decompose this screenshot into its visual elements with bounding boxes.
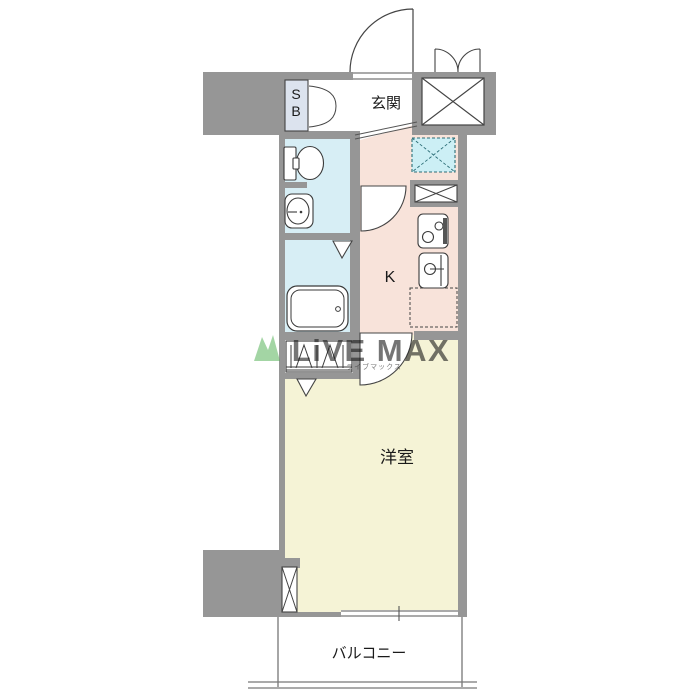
pipe-space-icon bbox=[415, 185, 457, 202]
watermark-subtext: ライブマックス bbox=[346, 362, 402, 371]
pipe-space-icon bbox=[282, 567, 297, 612]
elevator-shaft-icon bbox=[422, 78, 484, 125]
washbasin-icon bbox=[285, 194, 313, 228]
bathtub-icon bbox=[287, 286, 348, 331]
balcony-label: バルコニー bbox=[332, 645, 407, 662]
entrance-label: 玄関 bbox=[371, 95, 401, 112]
elevator-double-door-arc bbox=[435, 49, 480, 72]
kitchen-label: K bbox=[385, 269, 396, 286]
meter-box bbox=[412, 138, 455, 172]
floorplan-canvas: 玄関 S B K 洋室 バルコニー LiVE MAX ライブマックス bbox=[0, 0, 700, 700]
shoe-box-label-s: S bbox=[291, 86, 300, 102]
watermark-logo bbox=[254, 335, 280, 361]
stove-icon bbox=[418, 214, 448, 248]
floorplan-drawing: 玄関 S B K 洋室 バルコニー LiVE MAX ライブマックス bbox=[0, 0, 700, 700]
shoe-box-label-b: B bbox=[291, 103, 300, 119]
western-room-label: 洋室 bbox=[380, 448, 414, 467]
watermark-text: LiVE MAX bbox=[292, 333, 450, 368]
entrance-door-arc bbox=[350, 9, 413, 72]
entrance-threshold bbox=[353, 72, 412, 80]
sink-icon bbox=[419, 253, 448, 288]
toilet-icon bbox=[284, 147, 324, 181]
